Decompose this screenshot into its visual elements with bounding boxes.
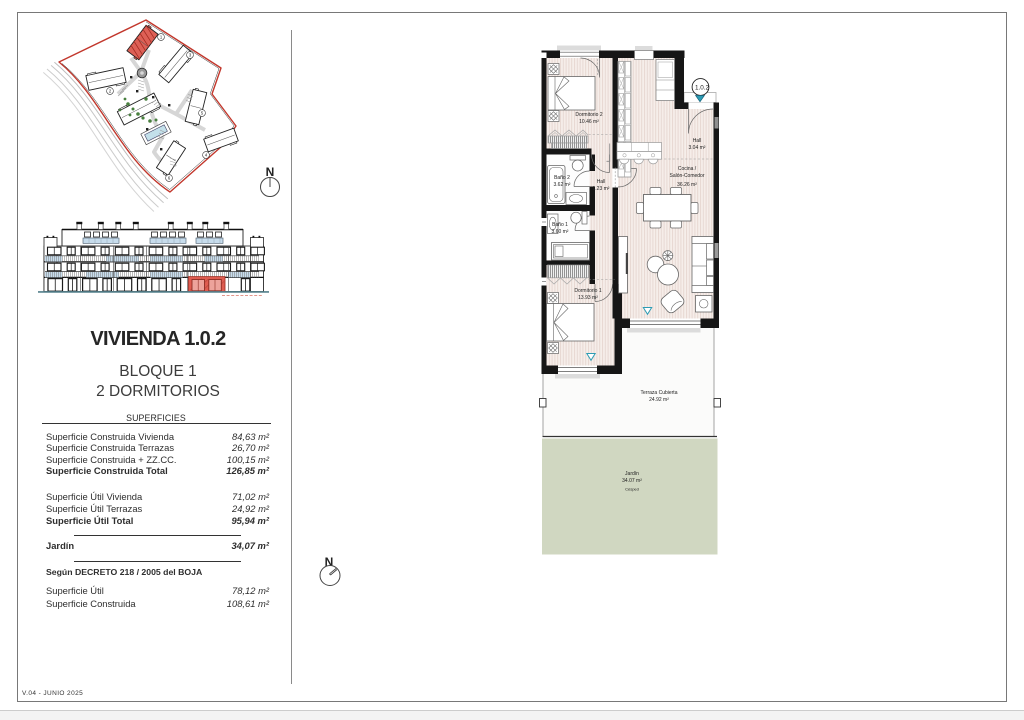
svg-text:N: N — [266, 165, 275, 179]
svg-text:36.26 m²: 36.26 m² — [677, 182, 697, 188]
svg-text:10.46 m²: 10.46 m² — [579, 119, 599, 125]
svg-text:Terraza Cubierta: Terraza Cubierta — [641, 390, 678, 396]
svg-text:1.0.2: 1.0.2 — [695, 84, 710, 91]
svg-text:Dormitorio 2: Dormitorio 2 — [575, 112, 602, 118]
svg-text:Salón-Comedor: Salón-Comedor — [669, 173, 704, 179]
svg-text:Hall: Hall — [597, 179, 606, 185]
svg-text:1.23 m²: 1.23 m² — [593, 186, 610, 192]
svg-text:3.62 m²: 3.62 m² — [554, 182, 571, 188]
svg-text:24.92 m²: 24.92 m² — [649, 397, 669, 403]
svg-text:Jardín: Jardín — [625, 471, 639, 477]
svg-text:Baño 1: Baño 1 — [552, 222, 568, 228]
svg-text:Hall: Hall — [693, 138, 702, 144]
svg-text:Dormitorio 1: Dormitorio 1 — [574, 288, 601, 294]
svg-text:N: N — [325, 555, 334, 569]
svg-text:34.07 m²: 34.07 m² — [622, 478, 642, 484]
svg-text:13.93 m²: 13.93 m² — [578, 295, 598, 301]
svg-text:3.60 m²: 3.60 m² — [552, 229, 569, 235]
svg-text:Césped: Césped — [625, 487, 639, 492]
svg-text:Baño 2: Baño 2 — [554, 175, 570, 181]
svg-text:3.04 m²: 3.04 m² — [689, 145, 706, 151]
svg-text:Cocina /: Cocina / — [678, 166, 697, 172]
